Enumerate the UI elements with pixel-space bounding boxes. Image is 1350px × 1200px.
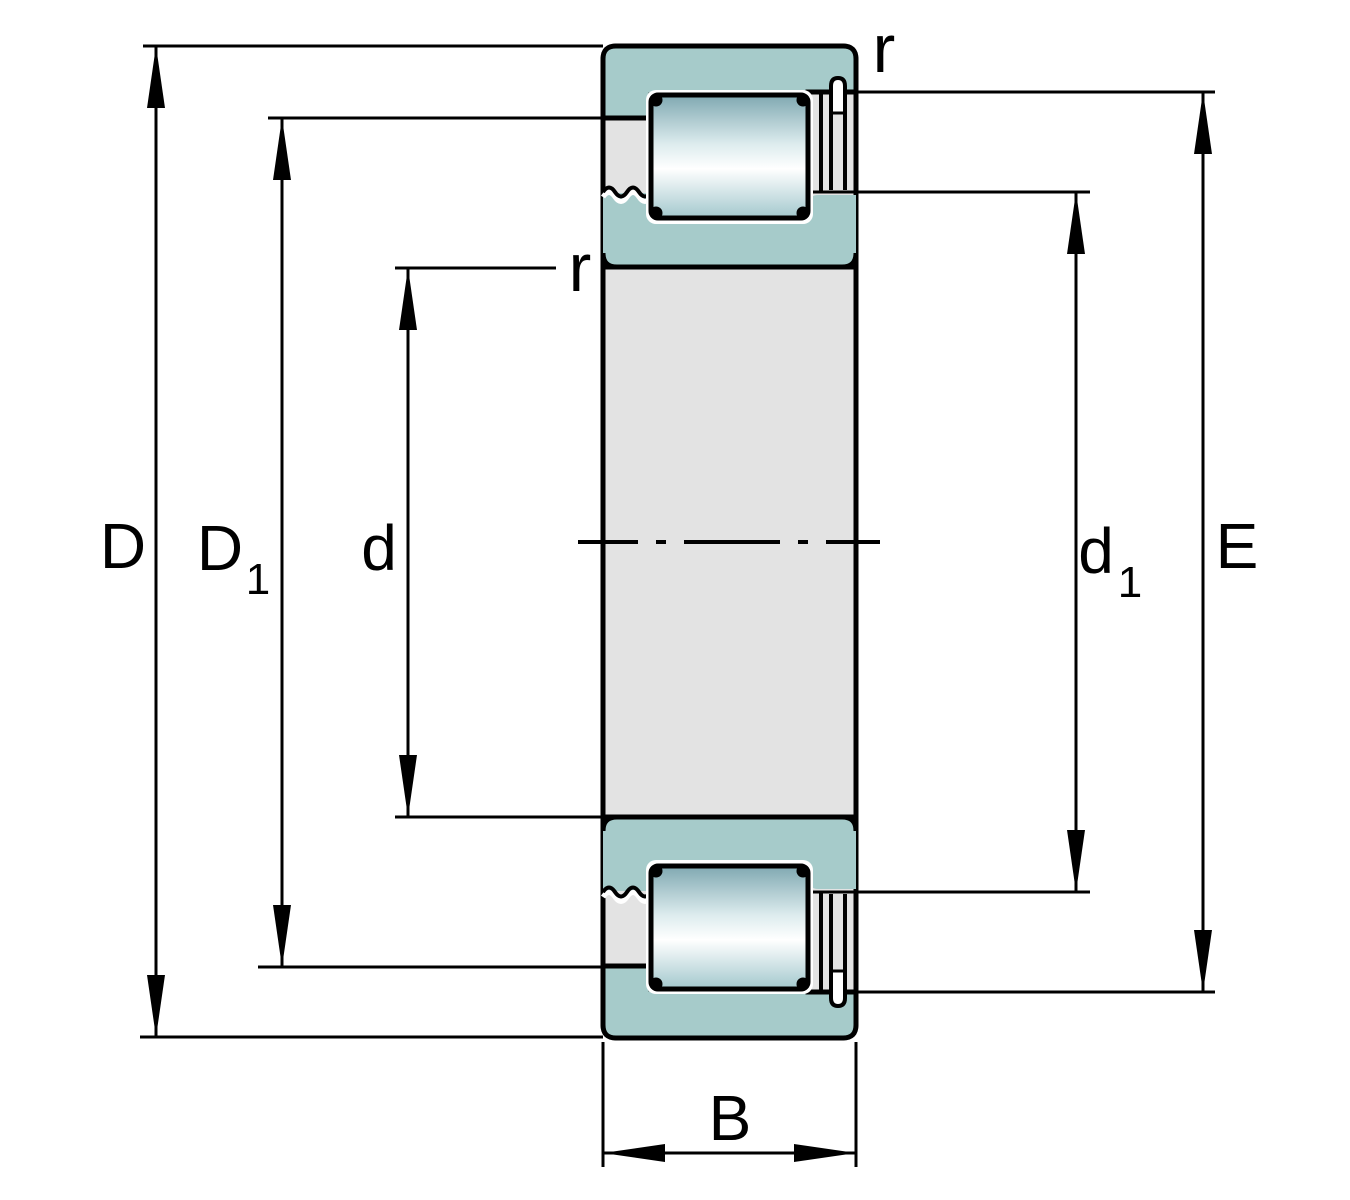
arrow-d-up [399, 268, 417, 330]
snap-ring-pin-top [832, 79, 844, 112]
snap-ring-pin-bottom [832, 972, 844, 1005]
label-D1: D [197, 512, 243, 584]
bearing-dimension-drawing: D D 1 d d 1 E B r r [0, 0, 1350, 1200]
roller-corner-dot [650, 94, 663, 107]
roller-corner-dot [797, 94, 810, 107]
drawing-canvas: D D 1 d d 1 E B r r [0, 0, 1350, 1200]
arrow-d-down [399, 755, 417, 817]
roller-corner-dot [650, 978, 663, 991]
arrow-d1-down [1067, 830, 1085, 892]
roller-corner-dot [650, 865, 663, 878]
arrow-D-up [147, 46, 165, 108]
arrow-E-up [1194, 92, 1212, 154]
label-D1-subscript: 1 [246, 555, 270, 604]
roller-top [651, 95, 808, 218]
label-E: E [1216, 510, 1259, 582]
arrow-d1-up [1067, 192, 1085, 254]
label-D: D [100, 510, 146, 582]
roller-corner-dot [797, 978, 810, 991]
arrow-B-right [794, 1144, 856, 1162]
arrow-B-left [603, 1144, 665, 1162]
label-B: B [709, 1082, 752, 1154]
label-d1-subscript: 1 [1118, 558, 1142, 607]
label-d1: d [1078, 515, 1114, 587]
label-d: d [361, 512, 397, 584]
roller-corner-dot [650, 207, 663, 220]
arrow-E-down [1194, 930, 1212, 992]
label-r-outer-chamfer: r [873, 11, 896, 87]
label-r-inner-chamfer: r [569, 230, 592, 306]
arrow-D1-down [273, 905, 291, 967]
arrow-D1-up [273, 118, 291, 180]
roller-bottom [651, 866, 808, 989]
roller-corner-dot [797, 207, 810, 220]
roller-corner-dot [797, 865, 810, 878]
arrow-D-down [147, 975, 165, 1037]
